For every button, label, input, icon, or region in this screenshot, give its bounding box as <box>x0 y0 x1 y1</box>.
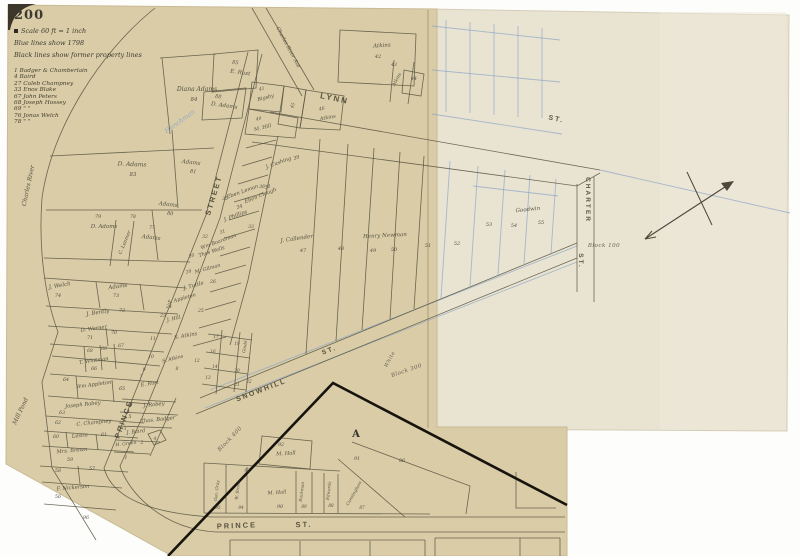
map-label: 57 <box>89 466 96 472</box>
map-label: 12 <box>194 358 200 363</box>
scan-sheets <box>6 4 789 556</box>
map-label: 6 <box>129 402 132 408</box>
map-label: 85 <box>232 60 239 67</box>
map-label: 53 <box>486 222 492 228</box>
map-label: 24 <box>165 304 172 310</box>
map-label: 62 <box>55 420 61 426</box>
map-label: 63 <box>59 410 65 416</box>
map-label: D. Adams <box>90 224 118 230</box>
map-label: 83 <box>130 172 137 178</box>
map-label: 88 <box>215 94 222 101</box>
map-label: 35 <box>222 196 228 202</box>
map-label: 66 <box>91 366 97 372</box>
map-label: 88 <box>328 503 334 508</box>
map-label: 64 <box>63 377 69 383</box>
map-label: 51 <box>425 243 431 249</box>
map-label: 93 <box>244 468 250 473</box>
map-label: 33 <box>248 224 254 230</box>
map-label: 74 <box>55 293 61 299</box>
map-label: 2 <box>140 440 144 445</box>
map-label: 47 <box>299 248 307 254</box>
map-label: 91 <box>354 456 360 462</box>
map-label: 9 <box>143 367 146 373</box>
map-label: 26 <box>209 279 216 285</box>
map-label: 49 <box>369 248 377 254</box>
map-label: 72 <box>119 308 125 314</box>
map-label: 77 <box>149 225 155 231</box>
map-label: D. Adams <box>116 160 146 168</box>
map-label: 61 <box>101 432 107 438</box>
map-label: 5 <box>128 414 131 420</box>
map-label: 68 <box>87 348 93 354</box>
map-label: 23 <box>159 313 166 319</box>
map-label: ST. <box>577 253 584 268</box>
map-label: 78 <box>130 214 136 220</box>
map-label: 44 <box>410 76 417 82</box>
map-label: 21 <box>233 382 239 387</box>
map-label: 95 <box>215 505 221 510</box>
sheet-light-band <box>660 12 786 430</box>
map-label: 84 <box>191 97 198 103</box>
map-label: 48 <box>337 246 344 252</box>
map-label: 8 <box>176 366 179 372</box>
map-label: 13 <box>205 375 211 380</box>
map-label: 79 <box>95 214 102 220</box>
map-label: 20 <box>233 368 240 373</box>
map-label: 19 <box>234 341 240 346</box>
map-label: 60 <box>53 434 59 440</box>
map-label: ST. <box>295 520 312 530</box>
map-label: 86 <box>399 458 405 464</box>
map-label: A <box>351 429 360 440</box>
map-label: 94 <box>238 505 244 510</box>
map-label: 73 <box>113 293 119 299</box>
map-label: 16 <box>210 349 216 354</box>
map-label: 81 <box>190 169 197 176</box>
map-label: 25 <box>197 308 204 314</box>
map-scan-page: LYNNST.CHARTERST.STREETPRINCESNOWHILLST.… <box>0 0 800 556</box>
map-label: 1 <box>125 455 128 461</box>
map-label: 70 <box>111 330 117 336</box>
map-label: 32 <box>202 234 208 240</box>
map-label: 65 <box>119 386 125 392</box>
map-label: 11 <box>150 336 156 342</box>
map-label: 42 <box>374 54 381 60</box>
map-label: 43 <box>390 62 397 68</box>
map-label: 71 <box>87 335 93 341</box>
map-label: 56 <box>55 494 61 500</box>
map-label: 55 <box>538 220 544 226</box>
map-label: 4 <box>153 436 157 441</box>
map-label: 50 <box>391 247 398 253</box>
historic-plat-map: LYNNST.CHARTERST.STREETPRINCESNOWHILLST.… <box>0 0 800 556</box>
map-label: Diana Adams <box>176 86 217 93</box>
map-label: 22 <box>245 379 252 384</box>
map-label: 54 <box>511 223 517 229</box>
map-label: 92 <box>278 442 284 448</box>
map-label: 10 <box>148 354 154 360</box>
map-label: 52 <box>454 241 460 247</box>
map-label: Block 100 <box>587 243 620 249</box>
map-label: 90 <box>277 504 283 510</box>
map-label: 96 <box>83 515 89 521</box>
map-label: 89 <box>301 504 307 509</box>
map-label: 17 <box>213 334 219 339</box>
map-label: CHARTER <box>584 177 591 223</box>
map-label: 58 <box>55 468 61 474</box>
map-label: 46 <box>317 106 325 113</box>
map-label: 87 <box>359 505 365 510</box>
map-label: PRINCE <box>217 520 258 530</box>
map-label: 69 <box>101 346 107 352</box>
map-label: 7 <box>140 374 143 380</box>
map-label: 59 <box>67 457 73 463</box>
map-label: 67 <box>118 343 124 349</box>
map-label: 36 <box>259 184 265 190</box>
map-label: 14 <box>212 364 218 369</box>
